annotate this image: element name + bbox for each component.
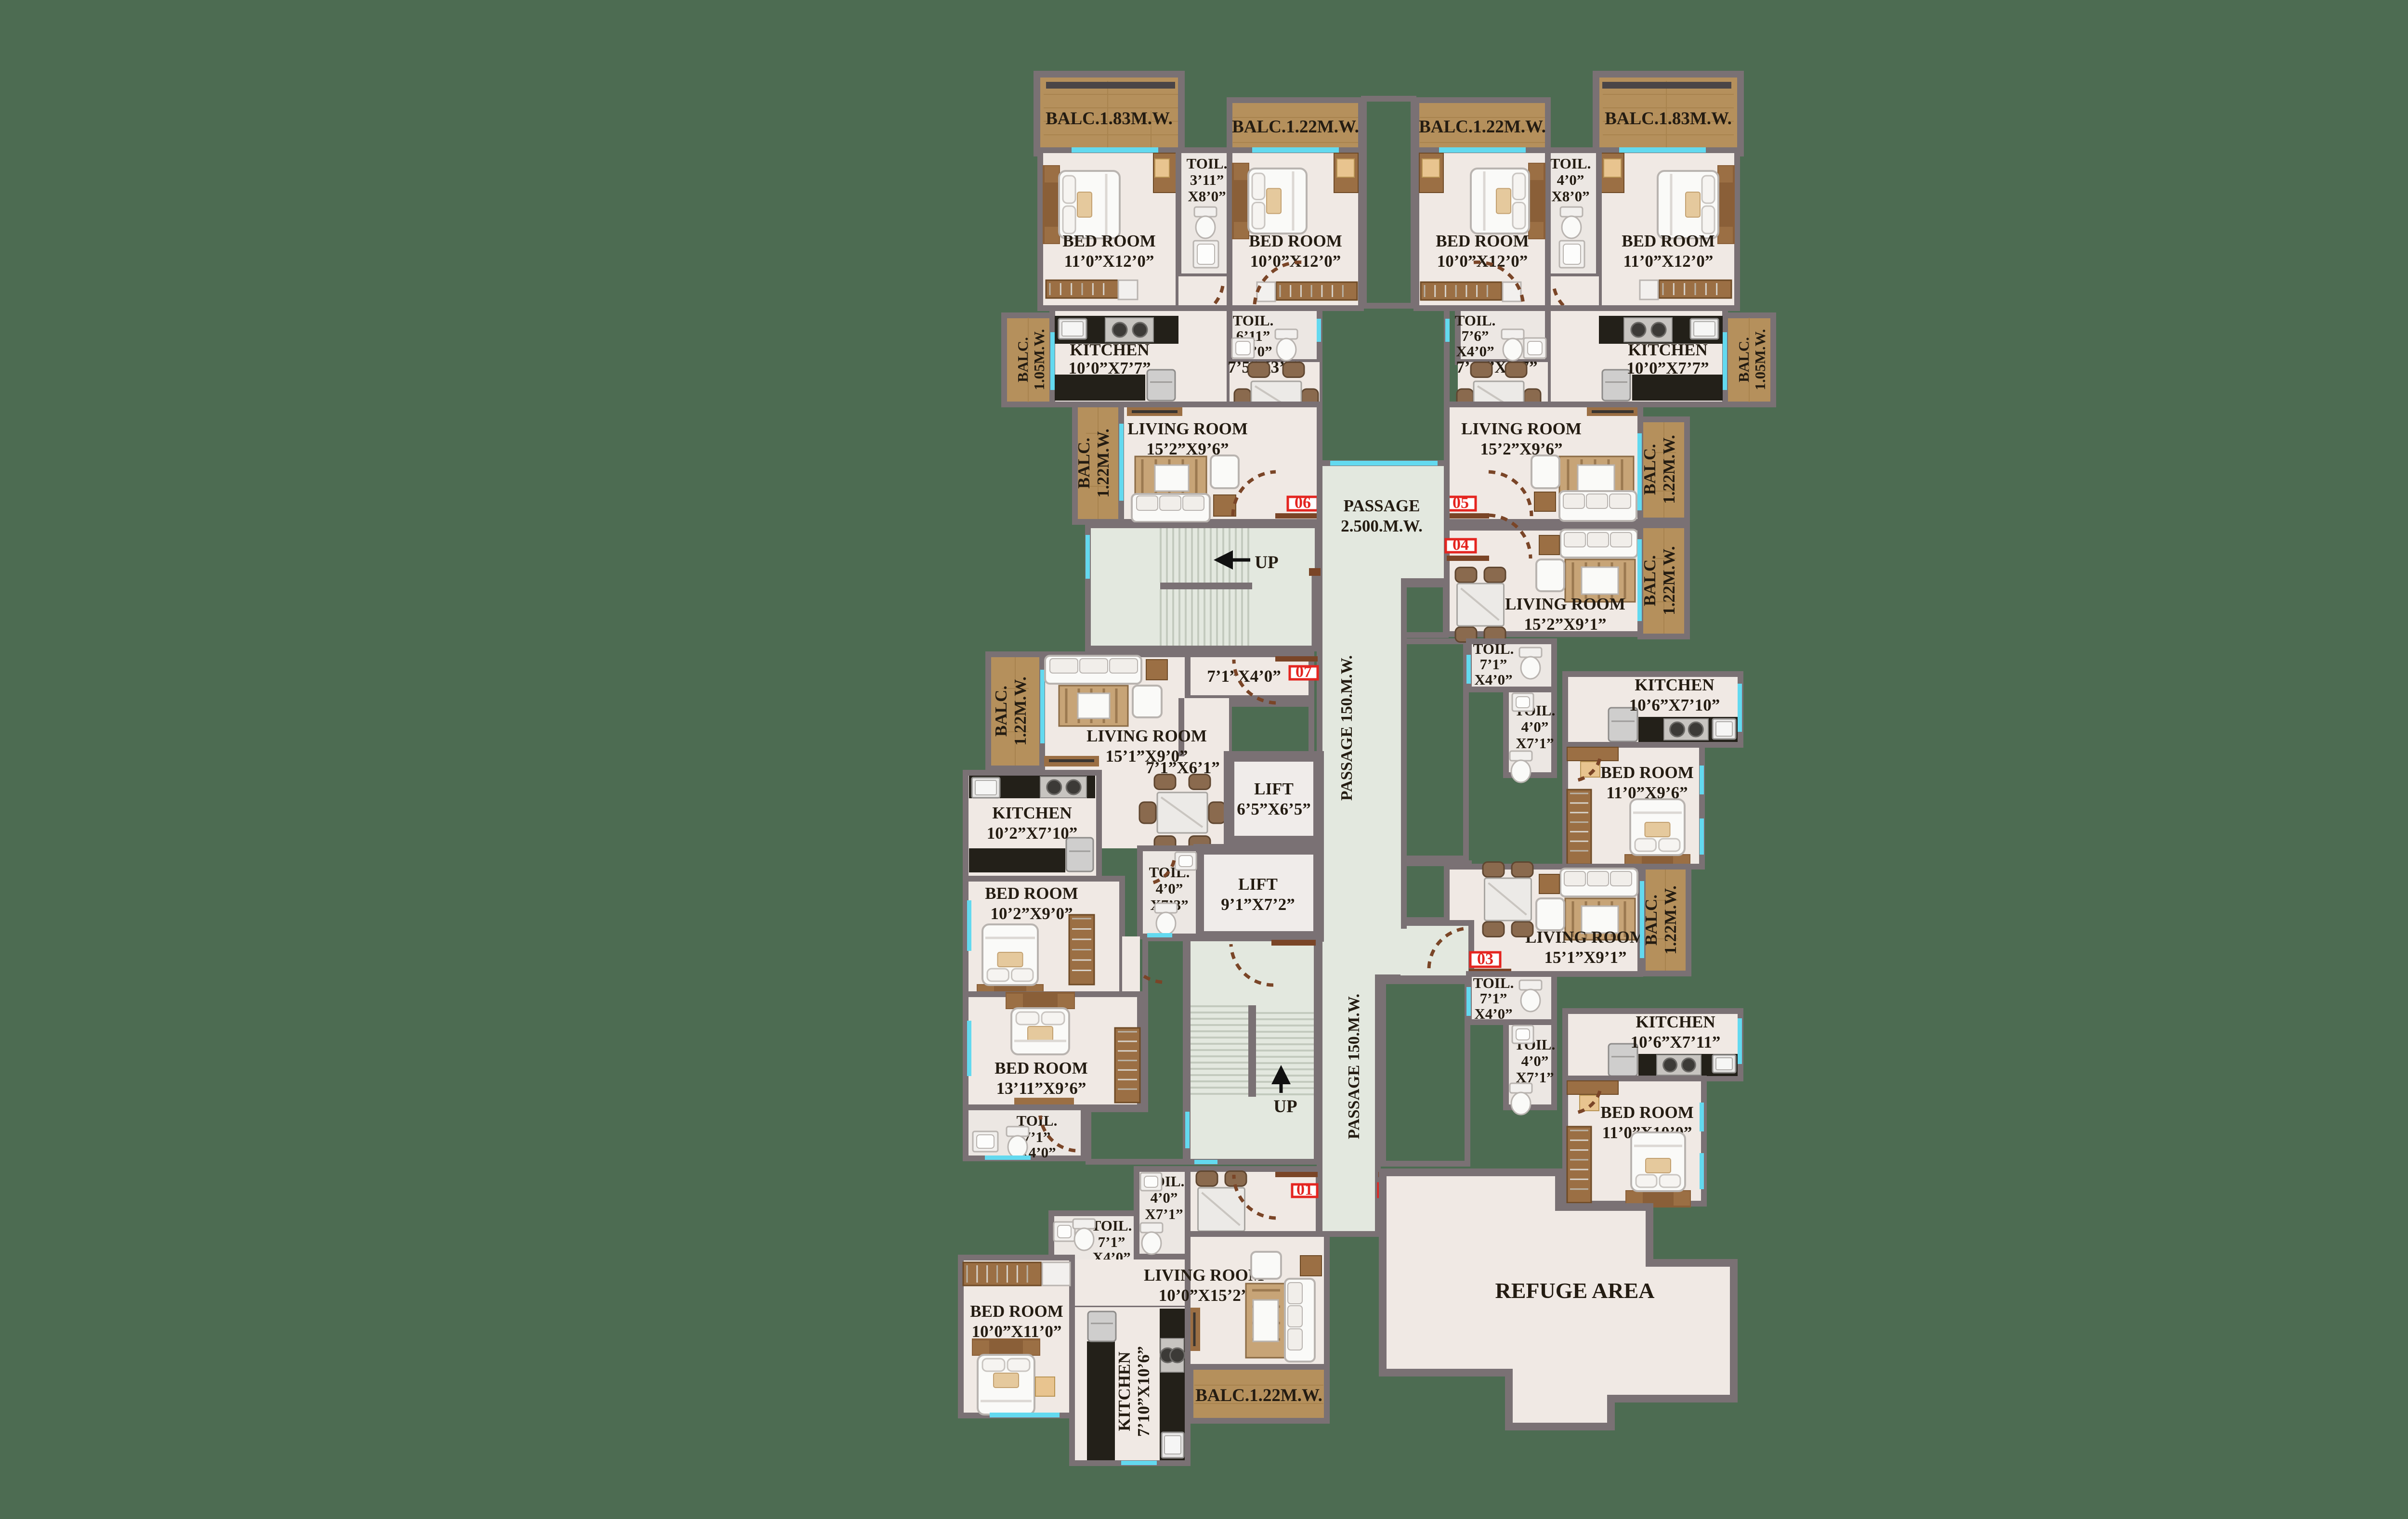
svg-text:4’0”: 4’0” [1156,880,1183,897]
svg-text:7’1”: 7’1” [1098,1233,1125,1250]
svg-text:KITCHEN: KITCHEN [1070,340,1149,359]
svg-text:LIFT: LIFT [1254,779,1294,798]
svg-text:1.22M.W.: 1.22M.W. [1660,435,1678,504]
svg-text:TOIL.: TOIL. [1187,155,1228,172]
svg-text:1.22M.W.: 1.22M.W. [1011,676,1030,746]
svg-text:BED ROOM: BED ROOM [1436,232,1529,250]
svg-text:15’2”X9’1”: 15’2”X9’1” [1524,615,1606,634]
svg-text:KITCHEN: KITCHEN [1635,675,1714,694]
svg-text:LIVING ROOM: LIVING ROOM [1086,727,1207,745]
svg-text:BALC.: BALC. [992,686,1010,737]
svg-text:06: 06 [1295,494,1311,512]
svg-text:LIVING ROOM: LIVING ROOM [1505,595,1625,613]
svg-text:1.22M.W.: 1.22M.W. [1660,546,1678,615]
svg-text:4’0”: 4’0” [1521,718,1549,735]
svg-text:10’6”X7’10”: 10’6”X7’10” [1629,696,1720,714]
svg-text:9’1”X7’2”: 9’1”X7’2” [1221,895,1295,914]
svg-text:7’6”: 7’6” [1462,327,1489,344]
svg-text:TOIL.: TOIL. [1550,155,1591,172]
svg-text:BALC.: BALC. [1014,337,1031,382]
svg-text:1.05M.W.: 1.05M.W. [1752,329,1768,390]
svg-text:10’6”X7’11”: 10’6”X7’11” [1631,1033,1721,1052]
svg-text:BALC.: BALC. [1735,337,1752,382]
svg-text:05: 05 [1453,494,1469,512]
svg-text:15’1”X9’1”: 15’1”X9’1” [1544,948,1626,967]
svg-text:X7’1”: X7’1” [1516,735,1554,752]
svg-text:BALC.: BALC. [1074,438,1093,489]
svg-text:X7’1”: X7’1” [1145,1206,1183,1222]
svg-text:X8’0”: X8’0” [1551,188,1589,205]
svg-text:07: 07 [1296,663,1312,681]
svg-text:BED ROOM: BED ROOM [1600,1103,1693,1122]
svg-text:REFUGE AREA: REFUGE AREA [1495,1278,1655,1303]
svg-text:3’11”: 3’11” [1190,171,1224,188]
svg-text:BED ROOM: BED ROOM [985,884,1078,903]
svg-text:LIVING ROOM: LIVING ROOM [1127,419,1248,438]
svg-text:BALC.1.22M.W.: BALC.1.22M.W. [1195,1386,1322,1405]
svg-text:KITCHEN: KITCHEN [1115,1351,1134,1431]
svg-text:BED ROOM: BED ROOM [1062,232,1155,250]
svg-text:BALC.1.83M.W.: BALC.1.83M.W. [1046,109,1173,129]
svg-text:15’2”X9’6”: 15’2”X9’6” [1480,440,1562,458]
svg-text:UP: UP [1255,553,1278,572]
svg-text:7’1”X4’0”: 7’1”X4’0” [1207,667,1281,686]
svg-text:04: 04 [1453,536,1469,554]
svg-text:UP: UP [1273,1097,1297,1117]
svg-text:10’0”X11’0”: 10’0”X11’0” [972,1322,1062,1341]
svg-text:4’0”: 4’0” [1151,1189,1178,1206]
svg-text:03: 03 [1477,950,1493,968]
svg-text:BED ROOM: BED ROOM [1249,232,1342,250]
svg-text:BED ROOM: BED ROOM [995,1059,1087,1078]
svg-text:PASSAGE 150.M.W.: PASSAGE 150.M.W. [1338,655,1356,801]
svg-text:4’0”: 4’0” [1521,1052,1549,1069]
svg-text:01: 01 [1296,1181,1313,1198]
svg-text:10’2”X7’10”: 10’2”X7’10” [987,824,1078,843]
svg-text:7’1”: 7’1” [1480,656,1507,673]
svg-text:1.22M.W.: 1.22M.W. [1661,885,1680,955]
svg-text:KITCHEN: KITCHEN [1636,1013,1715,1031]
svg-text:BED ROOM: BED ROOM [970,1302,1063,1321]
svg-text:13’11”X9’6”: 13’11”X9’6” [996,1079,1086,1098]
svg-text:LIFT: LIFT [1238,875,1278,894]
svg-text:X4’0”: X4’0” [1474,671,1512,688]
svg-text:6’5”X6’5”: 6’5”X6’5” [1237,800,1311,818]
svg-text:BALC.1.83M.W.: BALC.1.83M.W. [1605,109,1732,129]
svg-text:7’10”X10’6”: 7’10”X10’6” [1134,1346,1153,1437]
svg-text:LIVING ROOM: LIVING ROOM [1461,419,1582,438]
svg-text:X4’0”: X4’0” [1456,343,1494,360]
svg-text:KITCHEN: KITCHEN [992,804,1072,822]
svg-text:TOIL.: TOIL. [1473,974,1514,991]
svg-text:PASSAGE: PASSAGE [1344,496,1420,515]
svg-text:BALC.: BALC. [1640,555,1659,606]
svg-text:BED ROOM: BED ROOM [1622,232,1714,250]
svg-text:BALC.: BALC. [1642,895,1661,946]
svg-text:BED ROOM: BED ROOM [1600,763,1693,782]
svg-text:7’1”: 7’1” [1480,990,1507,1007]
svg-text:4’0”: 4’0” [1557,171,1584,188]
svg-text:TOIL.: TOIL. [1455,312,1496,329]
svg-text:10’0”X7’7”: 10’0”X7’7” [1068,359,1151,377]
svg-text:2.500.M.W.: 2.500.M.W. [1341,517,1423,535]
svg-text:KITCHEN: KITCHEN [1628,340,1707,359]
svg-text:BALC.1.22M.W.: BALC.1.22M.W. [1419,117,1546,137]
svg-text:1.22M.W.: 1.22M.W. [1094,428,1112,498]
svg-text:LIVING ROOM: LIVING ROOM [1525,928,1646,947]
svg-text:10’2”X9’0”: 10’2”X9’0” [990,904,1073,923]
svg-text:LIVING ROOM: LIVING ROOM [1144,1266,1264,1285]
svg-text:10’0”X15’2”: 10’0”X15’2” [1159,1286,1250,1305]
svg-text:10’0”X12’0”: 10’0”X12’0” [1437,252,1528,271]
svg-text:PASSAGE 150.M.W.: PASSAGE 150.M.W. [1345,994,1363,1139]
svg-text:BALC.: BALC. [1640,444,1659,495]
svg-text:X8’0”: X8’0” [1188,188,1226,205]
svg-text:TOIL.: TOIL. [1091,1217,1132,1234]
svg-text:TOIL.: TOIL. [1233,312,1274,329]
svg-text:BALC.1.22M.W.: BALC.1.22M.W. [1232,117,1359,137]
svg-text:1.05M.W.: 1.05M.W. [1031,329,1047,390]
svg-text:TOIL.: TOIL. [1473,640,1514,657]
svg-text:11’0”X12’0”: 11’0”X12’0” [1064,252,1154,271]
svg-text:11’0”X12’0”: 11’0”X12’0” [1623,252,1714,271]
svg-text:10’0”X7’7”: 10’0”X7’7” [1626,359,1709,377]
